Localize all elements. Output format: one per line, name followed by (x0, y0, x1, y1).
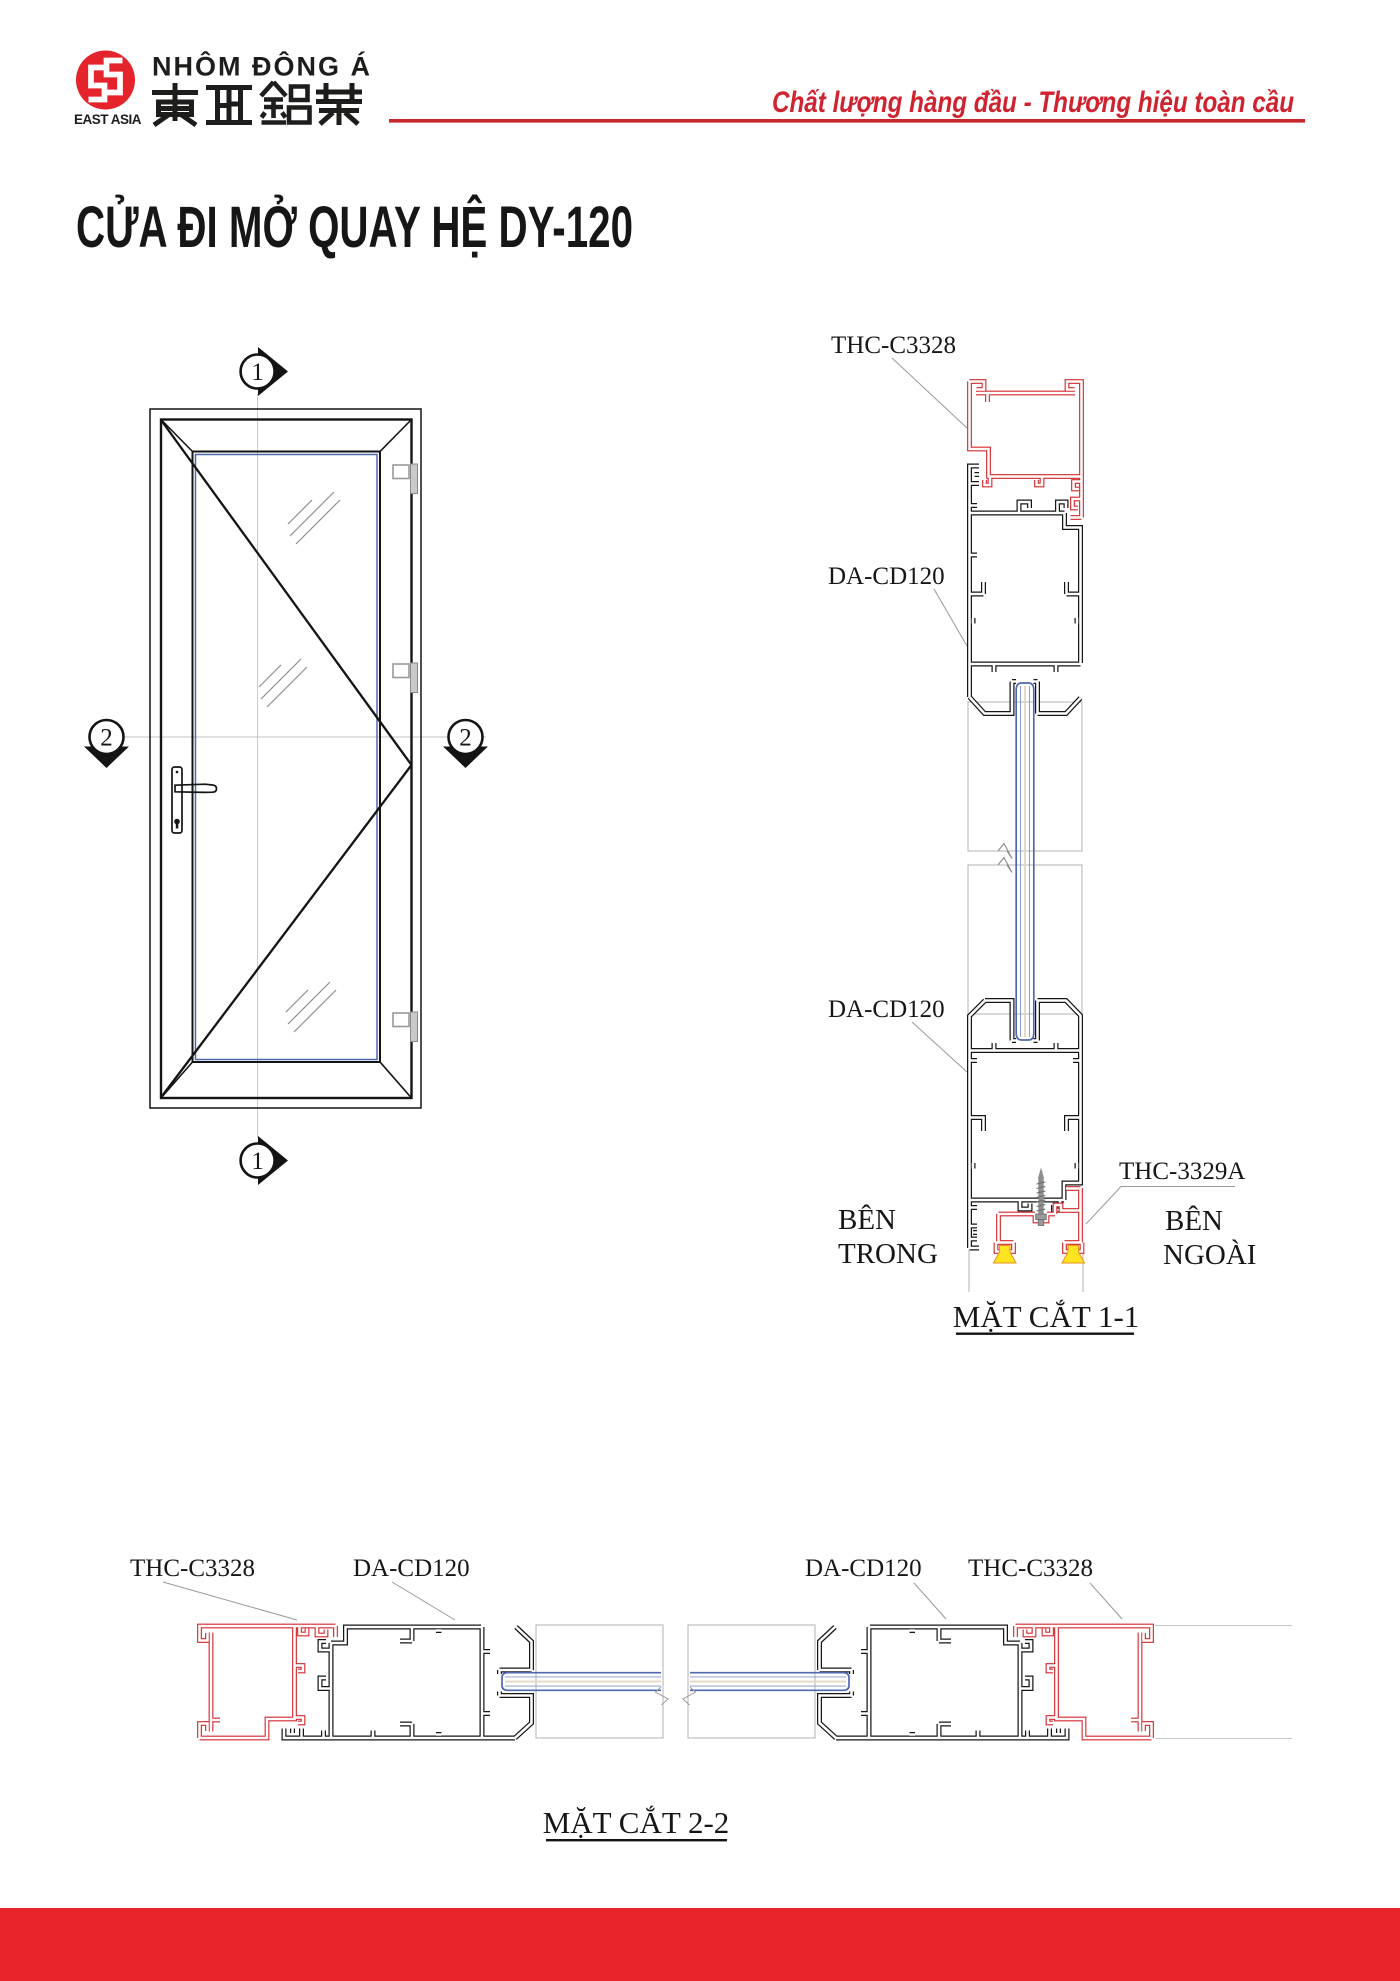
svg-text:Chất lượng hàng đầu - Thương h: Chất lượng hàng đầu - Thương hiệu toàn c… (772, 86, 1294, 119)
svg-text:BÊN: BÊN (838, 1203, 896, 1236)
svg-text:DA-CD120: DA-CD120 (828, 563, 945, 590)
svg-text:1: 1 (251, 359, 264, 386)
svg-text:MẶT CẮT 2-2: MẶT CẮT 2-2 (543, 1805, 730, 1840)
svg-text:THC-C3328: THC-C3328 (968, 1555, 1093, 1582)
svg-text:1: 1 (251, 1148, 264, 1175)
svg-text:2: 2 (100, 725, 113, 752)
svg-text:THC-C3328: THC-C3328 (831, 332, 956, 359)
svg-text:EAST ASIA: EAST ASIA (74, 112, 142, 127)
svg-text:DA-CD120: DA-CD120 (353, 1555, 470, 1582)
svg-text:THC-3329A: THC-3329A (1119, 1158, 1245, 1185)
svg-text:2: 2 (459, 725, 472, 752)
svg-text:DA-CD120: DA-CD120 (828, 996, 945, 1023)
svg-text:THC-C3328: THC-C3328 (130, 1555, 255, 1582)
svg-text:DA-CD120: DA-CD120 (805, 1555, 922, 1582)
svg-text:MẶT CẮT 1-1: MẶT CẮT 1-1 (953, 1299, 1140, 1334)
svg-text:TRONG: TRONG (838, 1238, 938, 1270)
svg-text:NHÔM ĐÔNG Á: NHÔM ĐÔNG Á (152, 51, 372, 82)
svg-text:NGOÀI: NGOÀI (1163, 1238, 1256, 1271)
svg-text:CỬA ĐI MỞ QUAY HỆ DY-120: CỬA ĐI MỞ QUAY HỆ DY-120 (76, 195, 633, 260)
svg-text:BÊN: BÊN (1165, 1204, 1223, 1237)
